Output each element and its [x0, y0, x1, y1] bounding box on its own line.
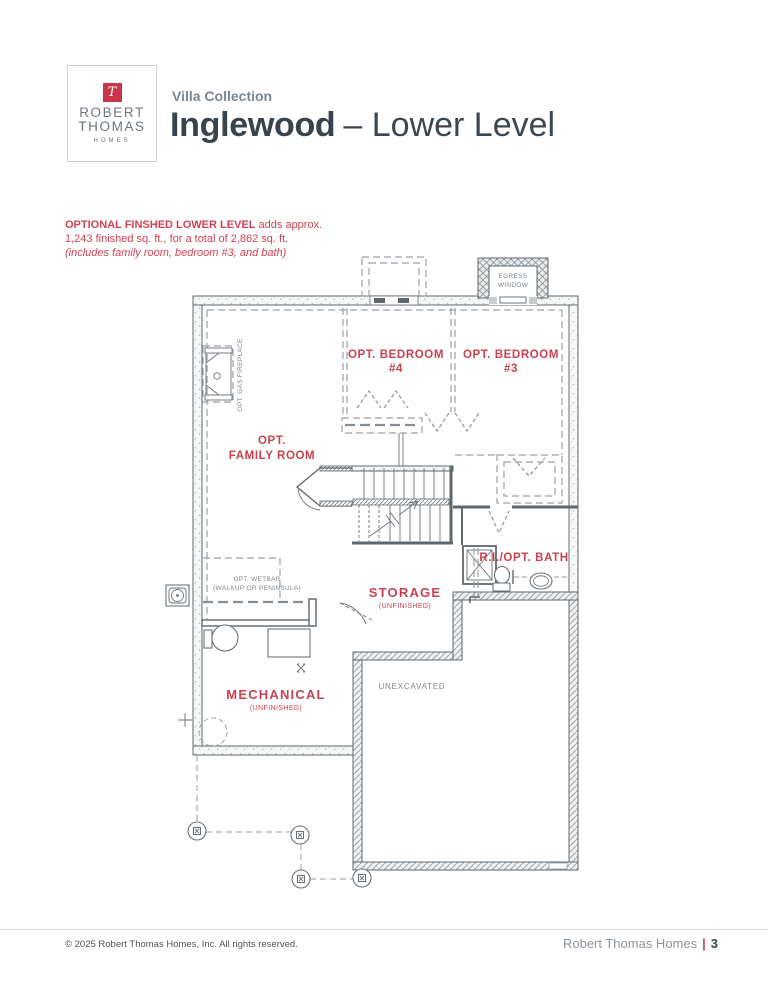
water-heater	[212, 625, 238, 651]
floorplan-drawing: EGRESS WINDOW OPT.	[0, 0, 768, 994]
footer-brand: Robert Thomas Homes|3	[563, 936, 718, 951]
furnace	[268, 629, 310, 657]
copyright-text: © 2025 Robert Thomas Homes, Inc. All rig…	[65, 939, 298, 950]
bedroom3-label-1: OPT. BEDROOM	[463, 349, 559, 361]
gas-fireplace: OPT. GAS FIREPLACE	[203, 338, 244, 412]
footing-post	[188, 822, 206, 840]
bedroom4-label-1: OPT. BEDROOM	[348, 349, 444, 361]
bedroom3-closet	[497, 455, 562, 503]
unexcavated-walls	[353, 592, 578, 870]
footer-divider	[0, 929, 768, 930]
bedroom-partition-walls	[342, 308, 497, 466]
storage-label: STORAGE	[369, 585, 441, 600]
family-room-label-1: OPT.	[258, 435, 286, 447]
fireplace-label: OPT. GAS FIREPLACE	[237, 338, 244, 412]
stair-up-arrow	[370, 501, 418, 536]
wetbar: OPT. WETBAR (WALKUP OR PENINSULA)	[202, 558, 372, 626]
footer-brand-name: Robert Thomas Homes	[563, 936, 697, 951]
toilet	[493, 567, 510, 592]
vanity-sink	[513, 570, 567, 589]
wetbar-label-1: OPT. WETBAR	[233, 576, 280, 583]
floor-drain-icon	[297, 664, 305, 672]
egress-label-1: EGRESS	[499, 273, 528, 280]
exterior-meter-icon	[166, 585, 189, 606]
mechanical-sublabel: (UNFINISHED)	[250, 705, 302, 712]
porch-footings	[188, 755, 371, 888]
unexcavated-label: UNEXCAVATED	[378, 682, 445, 691]
page-number: 3	[711, 936, 718, 951]
family-room-label-2: FAMILY ROOM	[229, 450, 315, 462]
bedroom3-label-2: #3	[504, 363, 518, 375]
bath-label: R.I./OPT. BATH	[479, 552, 568, 564]
window-well	[362, 257, 426, 305]
wetbar-label-2: (WALKUP OR PENINSULA)	[213, 585, 301, 592]
footing-post	[353, 869, 371, 887]
bedroom4-label-2: #4	[389, 363, 403, 375]
staircase	[297, 466, 453, 543]
bath-room: R.I./OPT. BATH	[453, 507, 578, 591]
water-softener	[204, 630, 212, 648]
survey-cross-icon	[178, 713, 192, 727]
footer-separator: |	[702, 936, 706, 951]
egress-label-2: WINDOW	[498, 282, 529, 289]
mechanical-label: MECHANICAL	[226, 687, 325, 702]
egress-window: EGRESS WINDOW	[478, 258, 548, 305]
footing-post	[292, 870, 310, 888]
storage-sublabel: (UNFINISHED)	[379, 603, 431, 610]
footing-post	[291, 826, 309, 844]
sump-basket	[199, 718, 227, 746]
